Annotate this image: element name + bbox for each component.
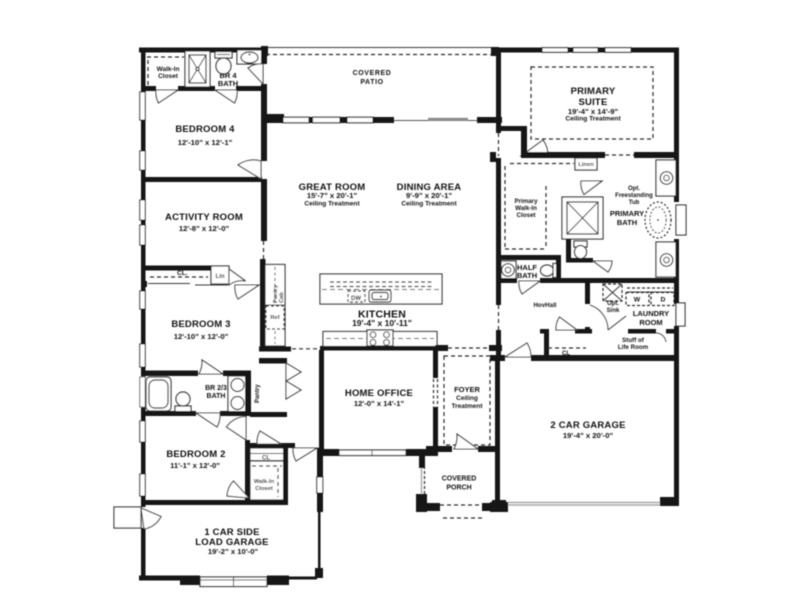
svg-text:19'-4" x 10'-11": 19'-4" x 10'-11" (352, 318, 412, 328)
svg-text:ACTIVITY ROOM: ACTIVITY ROOM (165, 212, 243, 223)
svg-text:Opt.: Opt. (607, 301, 619, 307)
svg-text:BATH: BATH (207, 393, 226, 400)
svg-text:Sink: Sink (607, 308, 620, 314)
svg-text:12'-10" x 12'-1": 12'-10" x 12'-1" (178, 138, 233, 147)
svg-text:LAUNDRY: LAUNDRY (633, 309, 669, 318)
svg-text:Lin: Lin (216, 274, 225, 280)
svg-text:19'-2" x 10'-0": 19'-2" x 10'-0" (208, 547, 259, 556)
svg-text:BATH: BATH (517, 271, 537, 280)
svg-text:W: W (634, 297, 641, 304)
svg-text:Tub: Tub (629, 200, 640, 206)
svg-text:Walk-In: Walk-In (515, 205, 537, 212)
svg-text:Primary: Primary (514, 198, 538, 205)
svg-text:BR 2/3: BR 2/3 (205, 385, 227, 392)
svg-text:BATH: BATH (617, 218, 637, 227)
svg-text:Ceiling Treatment: Ceiling Treatment (401, 201, 457, 208)
svg-text:CL.: CL. (177, 270, 188, 277)
svg-text:HovHall: HovHall (533, 302, 556, 309)
svg-text:Stuff of: Stuff of (622, 337, 645, 344)
svg-text:Life Room: Life Room (618, 344, 649, 351)
svg-text:11'-1" x 12'-0": 11'-1" x 12'-0" (170, 461, 220, 470)
svg-text:Opt.: Opt. (628, 186, 640, 192)
svg-text:COVERED: COVERED (442, 476, 477, 483)
svg-text:Closet: Closet (158, 73, 179, 80)
svg-text:BATH: BATH (218, 79, 238, 88)
svg-text:Linen: Linen (578, 162, 594, 168)
svg-text:Walk-In: Walk-In (254, 479, 275, 485)
svg-text:Closet: Closet (255, 486, 273, 492)
svg-text:COVERED: COVERED (353, 70, 392, 77)
svg-text:Closet: Closet (517, 212, 536, 219)
svg-text:Walk-In: Walk-In (157, 66, 180, 73)
svg-text:PATIO: PATIO (360, 79, 383, 86)
svg-text:D: D (661, 297, 666, 304)
svg-text:19'-4" x 20'-0": 19'-4" x 20'-0" (563, 431, 614, 440)
svg-text:2 CAR GARAGE: 2 CAR GARAGE (550, 420, 625, 431)
svg-text:ROOM: ROOM (639, 318, 662, 327)
svg-text:15'-7" x 20'-1": 15'-7" x 20'-1" (307, 191, 358, 200)
svg-text:Treatment: Treatment (451, 403, 483, 410)
svg-text:HOME OFFICE: HOME OFFICE (345, 388, 413, 399)
svg-text:Pantry: Pantry (255, 384, 261, 403)
svg-text:Cab: Cab (279, 292, 285, 303)
svg-text:9'-9" x 20'-1": 9'-9" x 20'-1" (406, 191, 452, 200)
svg-text:Ceiling: Ceiling (456, 395, 478, 402)
svg-text:Ref: Ref (270, 315, 279, 321)
svg-text:PRIMARY: PRIMARY (571, 86, 616, 97)
svg-text:BEDROOM 3: BEDROOM 3 (171, 319, 230, 330)
svg-text:Ceiling Treatment: Ceiling Treatment (565, 116, 621, 123)
svg-text:12'-8" x 12'-0": 12'-8" x 12'-0" (179, 224, 230, 233)
svg-text:PORCH: PORCH (446, 485, 471, 492)
svg-text:12'-0" x 14'-1": 12'-0" x 14'-1" (354, 399, 405, 408)
svg-text:BEDROOM 2: BEDROOM 2 (166, 449, 225, 460)
svg-text:Ceiling Treatment: Ceiling Treatment (304, 201, 360, 208)
svg-text:Freestanding: Freestanding (615, 193, 653, 199)
svg-text:FOYER: FOYER (454, 385, 480, 394)
svg-text:PRIMARY: PRIMARY (610, 209, 644, 218)
svg-text:DW: DW (351, 296, 361, 302)
svg-text:BEDROOM 4: BEDROOM 4 (175, 124, 235, 135)
svg-text:12'-10" x 12'-0": 12'-10" x 12'-0" (174, 332, 229, 341)
